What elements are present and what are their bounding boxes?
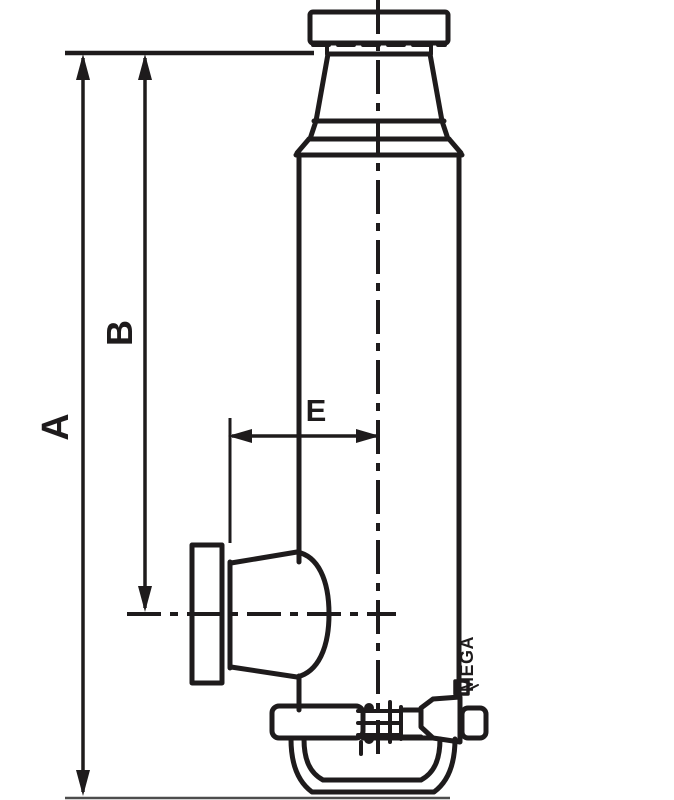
jack-outline	[192, 12, 486, 792]
valve-end-cap	[462, 708, 486, 738]
centerlines	[127, 0, 396, 757]
arrow-a-bottom	[76, 770, 90, 796]
arrow-e-left	[228, 429, 252, 443]
arrow-b-top	[138, 54, 152, 80]
arrow-b-bottom	[138, 586, 152, 612]
bottle-jack-drawing: A B E MEGA	[0, 0, 674, 800]
valve-horn	[421, 697, 460, 742]
base-inner	[304, 739, 440, 780]
diagram-canvas: A B E MEGA	[0, 0, 674, 800]
brand-text: MEGA	[457, 636, 477, 692]
valve-body	[272, 706, 363, 738]
base-outer	[291, 739, 455, 792]
ground-lines	[65, 53, 450, 798]
valve-pin-top	[364, 703, 374, 713]
arrow-a-top	[76, 54, 90, 80]
valve-neck	[401, 710, 421, 737]
dim-label-b: B	[99, 320, 140, 346]
dim-label-e: E	[306, 393, 327, 428]
dimension-lines	[83, 58, 376, 792]
dimension-arrowheads	[76, 54, 380, 796]
dim-label-a: A	[35, 413, 77, 440]
